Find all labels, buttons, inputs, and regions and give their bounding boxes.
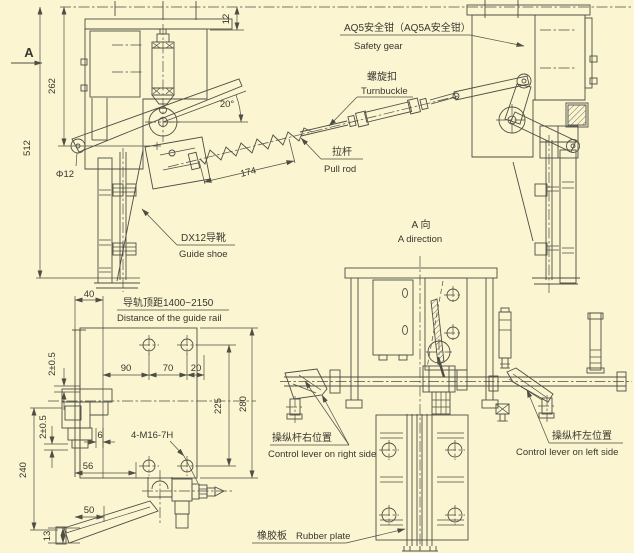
release-lever-assembly xyxy=(56,470,232,544)
right-guide-shoe xyxy=(513,135,580,293)
brake-lever xyxy=(71,79,242,189)
label-a-direction-zh: A 向 xyxy=(412,218,431,231)
spring-cylinder xyxy=(152,24,174,142)
label-thread-spec: 4-M16-7H xyxy=(131,430,173,441)
synchronizing-shaft xyxy=(280,366,632,414)
mounting-plate-detail: 导轨顶距1400~2150 Distance of the guide rail… xyxy=(18,289,258,544)
safety-rod xyxy=(499,308,511,368)
label-safety-gear-zh: AQ5安全钳（AQ5A安全钳） xyxy=(344,21,471,34)
rail-clip-bracket xyxy=(62,330,112,477)
right-tie-rod xyxy=(587,313,604,373)
dim-pin-diameter: Φ12 xyxy=(56,169,74,180)
view-arrow-label: A xyxy=(24,45,34,60)
label-rail-distance-zh: 导轨顶距1400~2150 xyxy=(123,296,214,309)
label-turnbuckle-en: Turnbuckle xyxy=(361,86,408,97)
control-lever-left-position xyxy=(496,368,556,422)
dim-step-width: 6 xyxy=(97,430,102,441)
dim-spring-length: 174 xyxy=(239,165,257,179)
right-elevation-view: AQ5安全钳（AQ5A安全钳） Safety gear xyxy=(340,0,597,293)
label-pull-rod-zh: 拉杆 xyxy=(332,145,352,158)
dim-plate-offset: 40 xyxy=(84,289,95,300)
trip-lever-section xyxy=(431,299,444,364)
left-elevation-view: A 512 262 12 xyxy=(11,1,248,292)
label-pull-rod-en: Pull rod xyxy=(324,164,356,175)
label-rubber-plate-en: Rubber plate xyxy=(296,531,350,542)
label-safety-gear-en: Safety gear xyxy=(354,41,403,52)
left-guide-shoe xyxy=(94,148,143,292)
turnbuckle xyxy=(348,98,428,127)
dim-hole-pitch-70: 70 xyxy=(163,363,174,374)
dim-overall-height: 512 xyxy=(22,140,33,156)
label-lever-right-zh: 操纵杆右位置 xyxy=(272,431,332,444)
label-rubber-plate-zh: 橡胶板 xyxy=(257,529,287,542)
safety-gear-technical-drawing: A 512 262 12 xyxy=(0,0,634,553)
label-lever-left-zh: 操纵杆左位置 xyxy=(552,429,612,442)
pull-rod-assembly: 174 螺旋扣 Turnbuckle 拉杆 Pull rod xyxy=(168,70,458,184)
pull-rod-spring xyxy=(200,128,312,164)
dim-lever-end-height: 13 xyxy=(42,531,53,542)
dim-plate-height: 280 xyxy=(238,396,249,412)
anchor-holes xyxy=(139,335,197,476)
label-lever-left-en: Control lever on left side xyxy=(516,447,618,458)
dim-upper-height: 262 xyxy=(47,78,58,94)
dim-edge-distance: 56 xyxy=(83,461,94,472)
label-rail-distance-en: Distance of the guide rail xyxy=(117,313,222,324)
label-guide-shoe-zh: DX12导靴 xyxy=(181,231,226,244)
label-guide-shoe-en: Guide shoe xyxy=(179,249,228,260)
label-a-direction-en: A direction xyxy=(398,234,442,245)
label-lever-right-en: Control lever on right side xyxy=(268,449,376,460)
dim-hole-row-span: 225 xyxy=(213,398,224,414)
dim-lever-angle: 20° xyxy=(220,99,235,110)
dim-lever-offset: 50 xyxy=(84,505,95,516)
dim-hole-pitch-90: 90 xyxy=(121,363,132,374)
dim-gap-lower: 2±0.5 xyxy=(38,415,49,439)
dim-gap-upper: 2±0.5 xyxy=(47,352,58,376)
dim-hole-edge-20: 20 xyxy=(191,363,202,374)
label-turnbuckle-zh: 螺旋扣 xyxy=(367,70,397,83)
rubber-plate-assembly xyxy=(376,414,468,551)
dim-bracket-height: 240 xyxy=(18,462,29,478)
drawing-canvas: A 512 262 12 xyxy=(0,0,634,553)
a-direction-view: A 向 A direction xyxy=(252,218,632,552)
